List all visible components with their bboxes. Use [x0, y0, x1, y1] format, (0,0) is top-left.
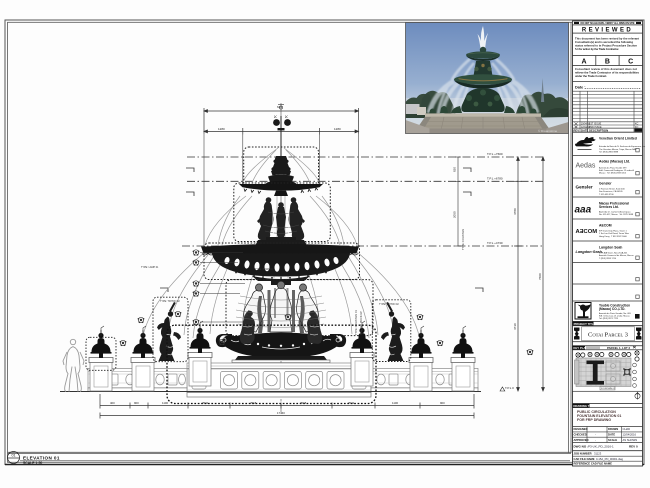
svg-text:1100: 1100 — [392, 401, 398, 405]
svg-text:DATE: DATE — [581, 128, 589, 132]
svg-text:TYPE: FOUNTAIN: TYPE: FOUNTAIN — [461, 229, 465, 250]
svg-text:Consultants(s) and is accorded: Consultants(s) and is accorded the follo… — [575, 40, 633, 44]
svg-text:01: 01 — [12, 454, 16, 458]
svg-text:status referred to in Project: status referred to in Project Procedure … — [575, 44, 637, 48]
svg-text:2542: 2542 — [348, 401, 355, 405]
svg-text:Avenida Comercial de Macau, Ma: Avenida Comercial de Macau, Macau — [599, 254, 634, 257]
svg-text:Hong Kong T 852.3922 9000: Hong Kong T 852.3922 9000 — [599, 236, 628, 238]
svg-text:820: 820 — [453, 167, 457, 172]
svg-text:TYPE: FOUNTAIN 01: TYPE: FOUNTAIN 01 — [354, 310, 358, 335]
svg-text:No. 411-417, Macau Tel: 2875: No. 411-417, Macau Tel: 2875 3088 — [599, 214, 634, 216]
svg-text:Edf. China Law, 21 andar, Maca: Edf. China Law, 21 andar, Macau — [599, 315, 630, 318]
svg-text:1280: 1280 — [334, 127, 341, 131]
svg-text:A: A — [581, 59, 586, 66]
svg-text:REV: REV — [573, 128, 579, 132]
svg-text:This document has been revised: This document has been revised by the re… — [575, 37, 639, 41]
svg-text:Alameda Dr. Carlos D'Assumpcao: Alameda Dr. Carlos D'Assumpcao — [599, 211, 631, 214]
svg-text:5.4 for action by the Trade Co: 5.4 for action by the Trade Contractor. — [575, 47, 619, 51]
svg-text:1280: 1280 — [218, 127, 225, 131]
svg-text:(Macau) CO.,LTD.: (Macau) CO.,LTD. — [599, 307, 625, 311]
svg-text:TYPE: TRITON 02: TYPE: TRITON 02 — [379, 303, 399, 306]
svg-text:Avenida da Praia Grande, No. 4: Avenida da Praia Grande, No. 409 — [599, 312, 632, 315]
svg-text:900: 900 — [134, 401, 139, 405]
svg-text:aaa: aaa — [575, 205, 592, 216]
svg-text:Tel: (853) 2871 7725: Tel: (853) 2871 7725 — [599, 318, 619, 320]
svg-text:CHAD: CHAD — [623, 427, 631, 431]
svg-text:400: 400 — [110, 401, 115, 405]
svg-text:San Francisco, CA 94105: San Francisco, CA 94105 — [599, 190, 623, 193]
svg-text:under the Trade Contract.: under the Trade Contract. — [575, 74, 607, 78]
svg-text:Aedas (Macau) Ltd.: Aedas (Macau) Ltd. — [599, 160, 630, 164]
svg-text:8/F Grand City Plaza, Tower 1: 8/F Grand City Plaza, Tower 1 — [599, 230, 628, 233]
svg-text:B: B — [605, 59, 610, 66]
svg-text:2518: 2518 — [300, 401, 307, 405]
svg-text:-: - — [595, 439, 596, 442]
svg-text:17460: 17460 — [277, 411, 285, 415]
svg-text:T.P.L +6780: T.P.L +6780 — [487, 177, 503, 181]
svg-text:1100: 1100 — [162, 401, 168, 405]
svg-text:REV 0: REV 0 — [629, 445, 638, 449]
svg-text:CHECKED: CHECKED — [574, 433, 587, 437]
svg-text:AƎCOM: AƎCOM — [576, 229, 598, 235]
svg-text:DATE: DATE — [608, 433, 615, 437]
svg-text:4730: 4730 — [513, 323, 517, 330]
svg-text:© Dreamstime: © Dreamstime — [538, 129, 558, 133]
svg-text:2518: 2518 — [250, 401, 257, 405]
svg-text:2050: 2050 — [453, 211, 457, 218]
svg-text:DWG NO :: DWG NO : — [574, 445, 589, 449]
svg-text:2 Harrison Street, Suite 400: 2 Harrison Street, Suite 400 — [599, 188, 625, 191]
svg-text:31123: 31123 — [594, 452, 602, 456]
svg-text:-: - — [595, 434, 596, 437]
svg-text:T 415.433.3700: T 415.433.3700 — [599, 194, 614, 196]
svg-text:DESIGNED: DESIGNED — [574, 427, 588, 431]
svg-text:FOUNTAIN 01: FOUNTAIN 01 — [601, 387, 616, 390]
svg-text:T.P.L +7600: T.P.L +7600 — [487, 152, 503, 156]
svg-text:FOR FRP DRAWING: FOR FRP DRAWING — [577, 418, 611, 422]
svg-text:Consultant review of this docu: Consultant review of this document does … — [575, 67, 637, 71]
svg-text:TYPE: BOWL 02: TYPE: BOWL 02 — [255, 268, 274, 271]
svg-text:Tel: (853) 2882 8888: Tel: (853) 2882 8888 — [599, 151, 619, 153]
svg-text:PARCEL 1, LOT 2: PARCEL 1, LOT 2 — [607, 346, 630, 350]
svg-text:DRAWN: DRAWN — [608, 427, 618, 431]
svg-text:REVIEWED: REVIEWED — [582, 28, 633, 34]
svg-text:AECOM: AECOM — [599, 223, 612, 227]
svg-text:Aedas: Aedas — [576, 163, 596, 170]
svg-text:KEY PLAN: KEY PLAN — [573, 346, 587, 350]
svg-text:COTAI PARCEL 3: COTAI PARCEL 3 — [588, 331, 628, 338]
svg-text:C: C — [628, 59, 633, 66]
svg-text:APPROVED: APPROVED — [574, 438, 589, 442]
svg-text:0-15A_PD_00001.dwg: 0-15A_PD_00001.dwg — [596, 457, 624, 461]
svg-text:Estrada da Baia de N. Senhora: Estrada da Baia de N. Senhora da Esperan… — [599, 145, 646, 148]
svg-text:4780: 4780 — [513, 208, 517, 215]
svg-text:Gensler: Gensler — [576, 184, 593, 189]
svg-text:The Venetian Macao, Taipa, Mac: The Venetian Macao, Taipa, Macao SAR — [599, 148, 637, 151]
svg-text:Date :: Date : — [575, 86, 586, 90]
svg-text:12/04/2016: 12/04/2016 — [623, 433, 637, 437]
svg-text:TYPE: LAMP 01: TYPE: LAMP 01 — [141, 266, 159, 269]
svg-text:Avenida da Praia Grande 599: Avenida da Praia Grande 599 — [599, 166, 627, 169]
svg-text:T (853) 2833 1710: T (853) 2833 1710 — [599, 258, 617, 260]
svg-text:TYPE: TRITON 02: TYPE: TRITON 02 — [160, 300, 180, 303]
svg-text:PROJECT TITLE: PROJECT TITLE — [574, 322, 596, 326]
svg-text:CAD FILE NAME: CAD FILE NAME — [574, 457, 595, 461]
svg-text:REFERENCE CAD FILE NAME: REFERENCE CAD FILE NAME — [574, 462, 613, 466]
svg-text:Venetian Orient Limited: Venetian Orient Limited — [599, 137, 637, 141]
svg-text:AS SHOWN: AS SHOWN — [623, 438, 638, 442]
svg-text:DRAWING TITLE: DRAWING TITLE — [573, 404, 595, 408]
svg-text:relieve the Trade Contractor o: relieve the Trade Contractor of its resp… — [575, 71, 640, 75]
svg-text:900: 900 — [440, 401, 445, 405]
svg-text:7600: 7600 — [538, 273, 542, 280]
svg-text:DESCRIPTION: DESCRIPTION — [589, 128, 608, 132]
svg-text:Gensler: Gensler — [599, 181, 612, 185]
svg-text:SCALE: SCALE — [608, 438, 617, 442]
svg-text:JOB NUMBER: JOB NUMBER — [574, 452, 592, 456]
svg-text:THE FRP MOCK UP: THE FRP MOCK UP — [359, 311, 363, 335]
svg-text:P3-UK_PD_2016-1: P3-UK_PD_2016-1 — [588, 445, 614, 449]
svg-text:ELEVATION 01: ELEVATION 01 — [23, 455, 60, 460]
svg-text:T.P.L 0: T.P.L 0 — [505, 386, 514, 390]
svg-text:Services Ltd.: Services Ltd. — [599, 205, 619, 209]
svg-text:Langdon Seah: Langdon Seah — [599, 245, 622, 249]
svg-text:2542: 2542 — [202, 401, 209, 405]
svg-text:19/F AIA Tower, Nos 251A-301: 19/F AIA Tower, Nos 251A-301 — [599, 252, 628, 255]
svg-text:Edif. Comercial Rodrigues 12 a: Edif. Comercial Rodrigues 12 andar A — [599, 169, 634, 172]
svg-text:T.P.L +4730: T.P.L +4730 — [487, 241, 503, 245]
svg-text:Macau Tel: (853) 2833 1055: Macau Tel: (853) 2833 1055 — [599, 173, 627, 175]
